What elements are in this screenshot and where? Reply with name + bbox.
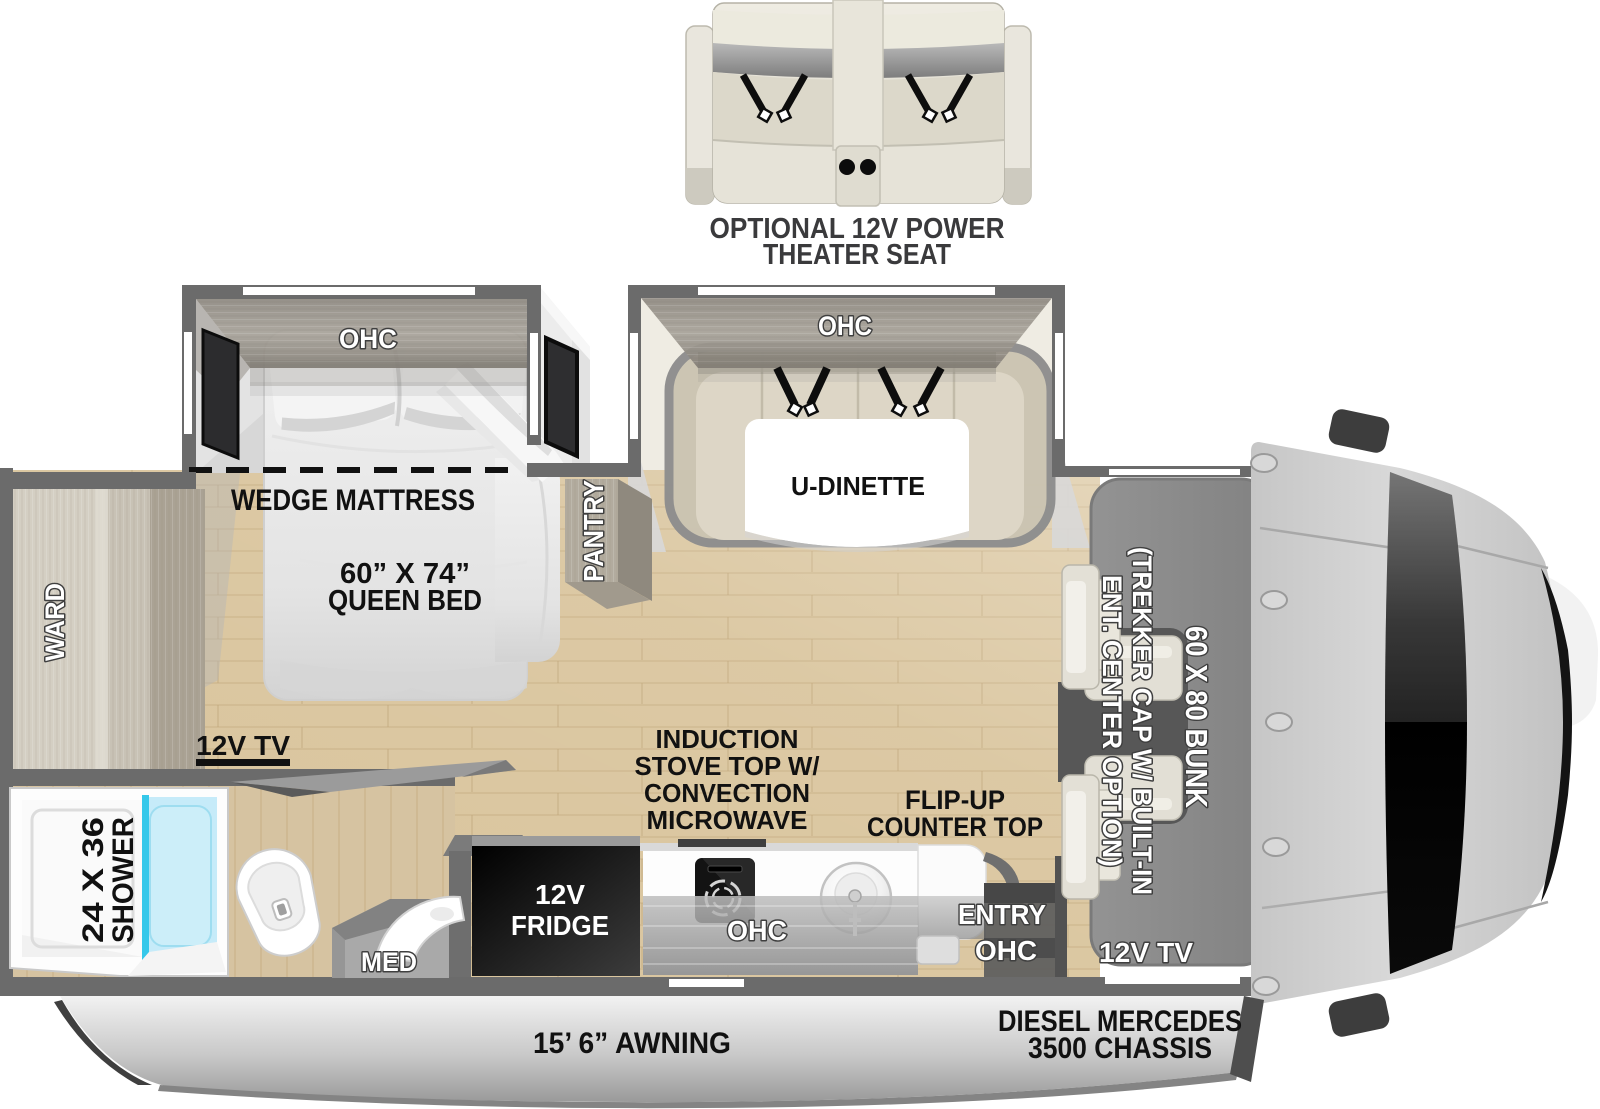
- svg-text:OHC: OHC: [339, 324, 397, 354]
- svg-text:ENT. CENTER OPTION): ENT. CENTER OPTION): [1097, 575, 1127, 867]
- svg-text:THEATER SEAT: THEATER SEAT: [763, 239, 951, 271]
- svg-text:WEDGE MATTRESS: WEDGE MATTRESS: [231, 484, 475, 517]
- svg-text:ENTRY: ENTRY: [958, 899, 1046, 930]
- svg-text:U-DINETTE: U-DINETTE: [791, 471, 925, 501]
- svg-text:OHC: OHC: [818, 311, 872, 341]
- svg-text:3500 CHASSIS: 3500 CHASSIS: [1028, 1032, 1212, 1065]
- svg-text:12V: 12V: [535, 879, 585, 910]
- svg-text:COUNTER TOP: COUNTER TOP: [867, 812, 1043, 842]
- svg-text:OHC: OHC: [727, 915, 787, 946]
- svg-text:MICROWAVE: MICROWAVE: [647, 805, 808, 835]
- svg-text:MED: MED: [361, 947, 417, 977]
- svg-text:WARD: WARD: [40, 583, 70, 661]
- svg-text:FRIDGE: FRIDGE: [511, 910, 609, 941]
- svg-text:(TREKKER CAP W/ BUILT-IN: (TREKKER CAP W/ BUILT-IN: [1127, 547, 1157, 895]
- svg-text:12V TV: 12V TV: [1099, 937, 1193, 968]
- svg-text:INDUCTION: INDUCTION: [656, 724, 799, 754]
- svg-text:15’ 6” AWNING: 15’ 6” AWNING: [533, 1027, 731, 1060]
- svg-text:12V TV: 12V TV: [196, 730, 290, 761]
- svg-text:FLIP-UP: FLIP-UP: [905, 785, 1005, 815]
- svg-text:24 X 36: 24 X 36: [77, 817, 110, 943]
- svg-text:PANTRY: PANTRY: [578, 480, 609, 582]
- svg-text:SHOWER: SHOWER: [107, 817, 140, 943]
- svg-text:QUEEN BED: QUEEN BED: [328, 585, 482, 617]
- svg-text:STOVE TOP W/: STOVE TOP W/: [635, 751, 820, 781]
- svg-text:OHC: OHC: [975, 935, 1037, 966]
- svg-text:60 X 80 BUNK: 60 X 80 BUNK: [1179, 626, 1214, 809]
- svg-text:CONVECTION: CONVECTION: [644, 778, 810, 808]
